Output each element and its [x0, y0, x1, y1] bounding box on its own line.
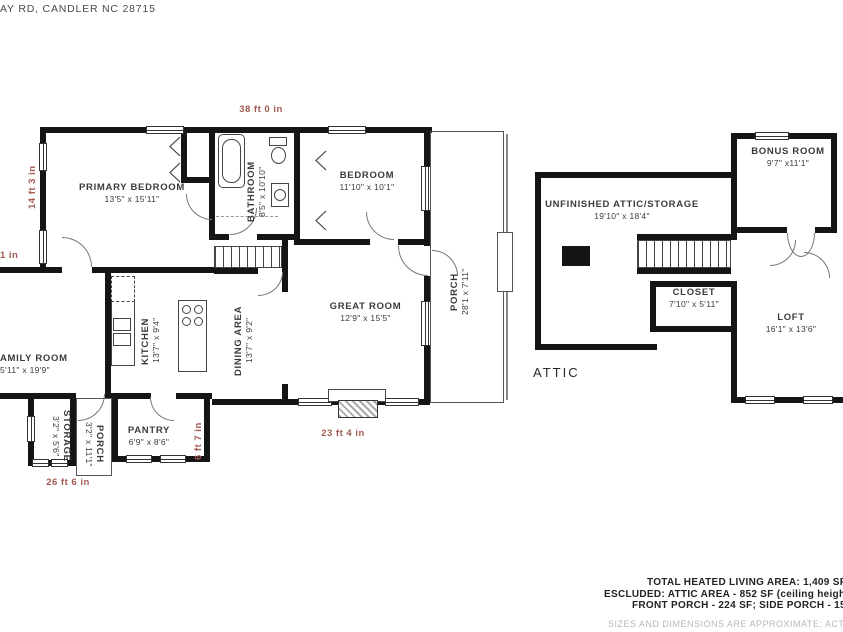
door-arc [258, 272, 283, 296]
wall [535, 344, 657, 350]
dimension-left-upper: 14 ft 3 in [27, 154, 38, 220]
window-marker [803, 396, 833, 404]
wall [209, 127, 215, 183]
wall [294, 239, 370, 245]
room-label-family-room: AMILY ROOM 5'11" x 19'9" [0, 353, 80, 375]
room-dims: 12'9" x 15'5" [308, 313, 423, 323]
room-label-kitchen: KITCHEN 13'7" x 9'4" [140, 296, 168, 386]
room-label-bedroom: BEDROOM 11'10" x 10'1" [312, 170, 422, 192]
stove-burner [194, 317, 203, 326]
room-label-bathroom: BATHROOM 8'5" x 10'10" [246, 146, 272, 238]
floor-plan-page: { "address": "AY RD, CANDLER NC 28715", … [0, 0, 843, 632]
room-name: CLOSET [652, 287, 736, 298]
room-name: PORCH [449, 247, 460, 337]
wall [204, 393, 210, 462]
sink-basin [274, 189, 286, 201]
window-marker [146, 126, 184, 134]
room-label-closet: CLOSET 7'10" x 5'11" [652, 287, 736, 309]
room-dims: 9'7" x11'1" [736, 158, 840, 168]
door-arc [398, 246, 428, 276]
room-name: AMILY ROOM [0, 353, 80, 364]
wall [214, 268, 258, 274]
dimension-left-partial: 1 in [0, 250, 18, 261]
room-name: BATHROOM [246, 146, 257, 238]
room-label-pantry: PANTRY 6'9" x 8'6" [112, 425, 186, 447]
door-arc [366, 212, 394, 240]
room-dims: 13'7" x 9'4" [151, 296, 161, 385]
stove-burner [182, 317, 191, 326]
window-marker [298, 398, 332, 406]
bifold-door-icon [314, 150, 327, 171]
window-marker [385, 398, 419, 406]
room-name: BONUS ROOM [736, 146, 840, 157]
room-name: PORCH [94, 413, 105, 475]
window-marker [745, 396, 775, 404]
toilet-bowl [271, 147, 286, 164]
room-label-loft: LOFT 16'1" x 13'6" [736, 312, 843, 334]
wall [40, 127, 432, 133]
room-dims: 13'7" x 9'2" [244, 296, 254, 385]
kitchen-sink [113, 333, 131, 346]
room-name: LOFT [736, 312, 843, 323]
wall [535, 172, 541, 350]
room-dims: 3'2" x 11'1" [84, 414, 94, 475]
stairs-main [214, 246, 282, 268]
window-marker [39, 230, 47, 264]
dimension-bottom-left: 26 ft 6 in [36, 477, 100, 488]
disclaimer-text: SIZES AND DIMENSIONS ARE APPROXIMATE; AC… [608, 619, 843, 629]
dimension-top: 38 ft 0 in [216, 104, 306, 115]
dimension-pantry-side: 6 ft 7 in [193, 417, 204, 465]
door-arc [150, 397, 174, 421]
room-label-bonus-room: BONUS ROOM 9'7" x11'1" [736, 146, 840, 168]
room-name: BEDROOM [312, 170, 422, 181]
door-arc [62, 237, 92, 267]
room-dims: 8'5" x 10'10" [257, 146, 267, 237]
porch-step [497, 232, 513, 292]
bifold-door-icon [168, 162, 181, 183]
door-arc [804, 252, 830, 278]
stove-burner [182, 305, 191, 314]
window-marker [160, 455, 186, 463]
room-dims: 13'5" x 15'11" [52, 194, 212, 204]
room-name: DINING AREA [233, 296, 244, 386]
fireplace [338, 400, 378, 418]
window-marker [39, 143, 47, 171]
wall [637, 268, 731, 274]
room-dims: 28'1 x 7'11" [460, 247, 470, 336]
room-label-unfinished-attic: UNFINISHED ATTIC/STORAGE 19'10" x 18'4" [543, 199, 701, 221]
room-name: PANTRY [112, 425, 186, 436]
room-name: GREAT ROOM [308, 301, 423, 312]
attic-section-label: ATTIC [533, 365, 580, 380]
summary-excluded-area: ESCLUDED: ATTIC AREA - 852 SF (ceiling h… [604, 589, 843, 600]
room-name: UNFINISHED ATTIC/STORAGE [543, 199, 701, 210]
window-marker [328, 126, 366, 134]
stove-burner [194, 305, 203, 314]
room-dims: 6'9" x 8'6" [112, 437, 186, 447]
chimney [562, 246, 590, 266]
room-dims: 11'10" x 10'1" [312, 182, 422, 192]
room-name: KITCHEN [140, 296, 151, 386]
wall [815, 227, 837, 233]
toilet-tank [269, 137, 287, 146]
bifold-door-icon [314, 210, 327, 231]
wall [282, 384, 288, 405]
room-name: PRIMARY BEDROOM [52, 182, 212, 193]
room-label-dining-area: DINING AREA 13'7" x 9'2" [233, 296, 261, 386]
wall [650, 326, 737, 332]
refrigerator [111, 276, 135, 302]
wall [0, 267, 62, 273]
room-label-storage: STORAGE 3'2" x 5'6" [46, 407, 72, 465]
wall [282, 240, 288, 292]
room-dims: 3'2" x 5'6" [51, 408, 61, 465]
window-marker [126, 455, 152, 463]
stairs-attic [637, 240, 731, 268]
wall [737, 227, 787, 233]
wall [209, 234, 229, 240]
window-marker [755, 132, 789, 140]
room-name: STORAGE [61, 407, 72, 465]
room-label-primary-bedroom: PRIMARY BEDROOM 13'5" x 15'11" [52, 182, 212, 204]
bifold-door-icon [168, 136, 181, 157]
window-marker [27, 416, 35, 442]
summary-porch-area: FRONT PORCH - 224 SF; SIDE PORCH - 15 [632, 600, 843, 611]
wall [294, 127, 300, 245]
window-marker [421, 166, 429, 211]
dimension-bottom-right: 23 ft 4 in [303, 428, 383, 439]
wall [181, 127, 187, 183]
address-text: AY RD, CANDLER NC 28715 [0, 3, 156, 15]
room-dims: 7'10" x 5'11" [652, 299, 736, 309]
kitchen-sink [113, 318, 131, 331]
summary-total-area: TOTAL HEATED LIVING AREA: 1,409 SF [647, 577, 843, 588]
wall [0, 393, 76, 399]
wall [535, 172, 737, 178]
bathtub-inner [222, 139, 241, 183]
room-label-side-porch: PORCH 28'1 x 7'11" [449, 247, 475, 337]
room-dims: 5'11" x 19'9" [0, 365, 80, 375]
room-label-great-room: GREAT ROOM 12'9" x 15'5" [308, 301, 423, 323]
door-arc [770, 240, 796, 266]
room-label-small-porch: PORCH 3'2" x 11'1" [79, 413, 105, 475]
room-dims: 16'1" x 13'6" [736, 324, 843, 334]
room-dims: 19'10" x 18'4" [543, 211, 701, 221]
